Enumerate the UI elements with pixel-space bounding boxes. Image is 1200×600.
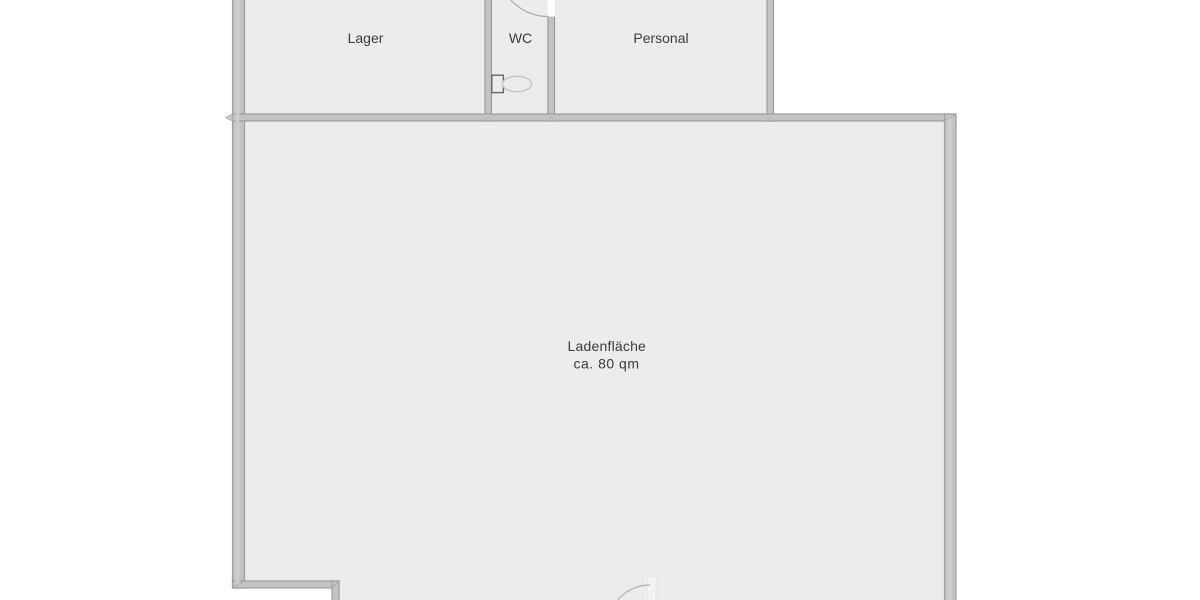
svg-text:Personal: Personal xyxy=(633,30,688,46)
svg-text:Ladenfläche: Ladenfläche xyxy=(568,338,647,354)
svg-text:Lager: Lager xyxy=(348,30,384,46)
svg-text:ca. 80 qm: ca. 80 qm xyxy=(574,356,640,372)
svg-text:WC: WC xyxy=(509,30,532,46)
